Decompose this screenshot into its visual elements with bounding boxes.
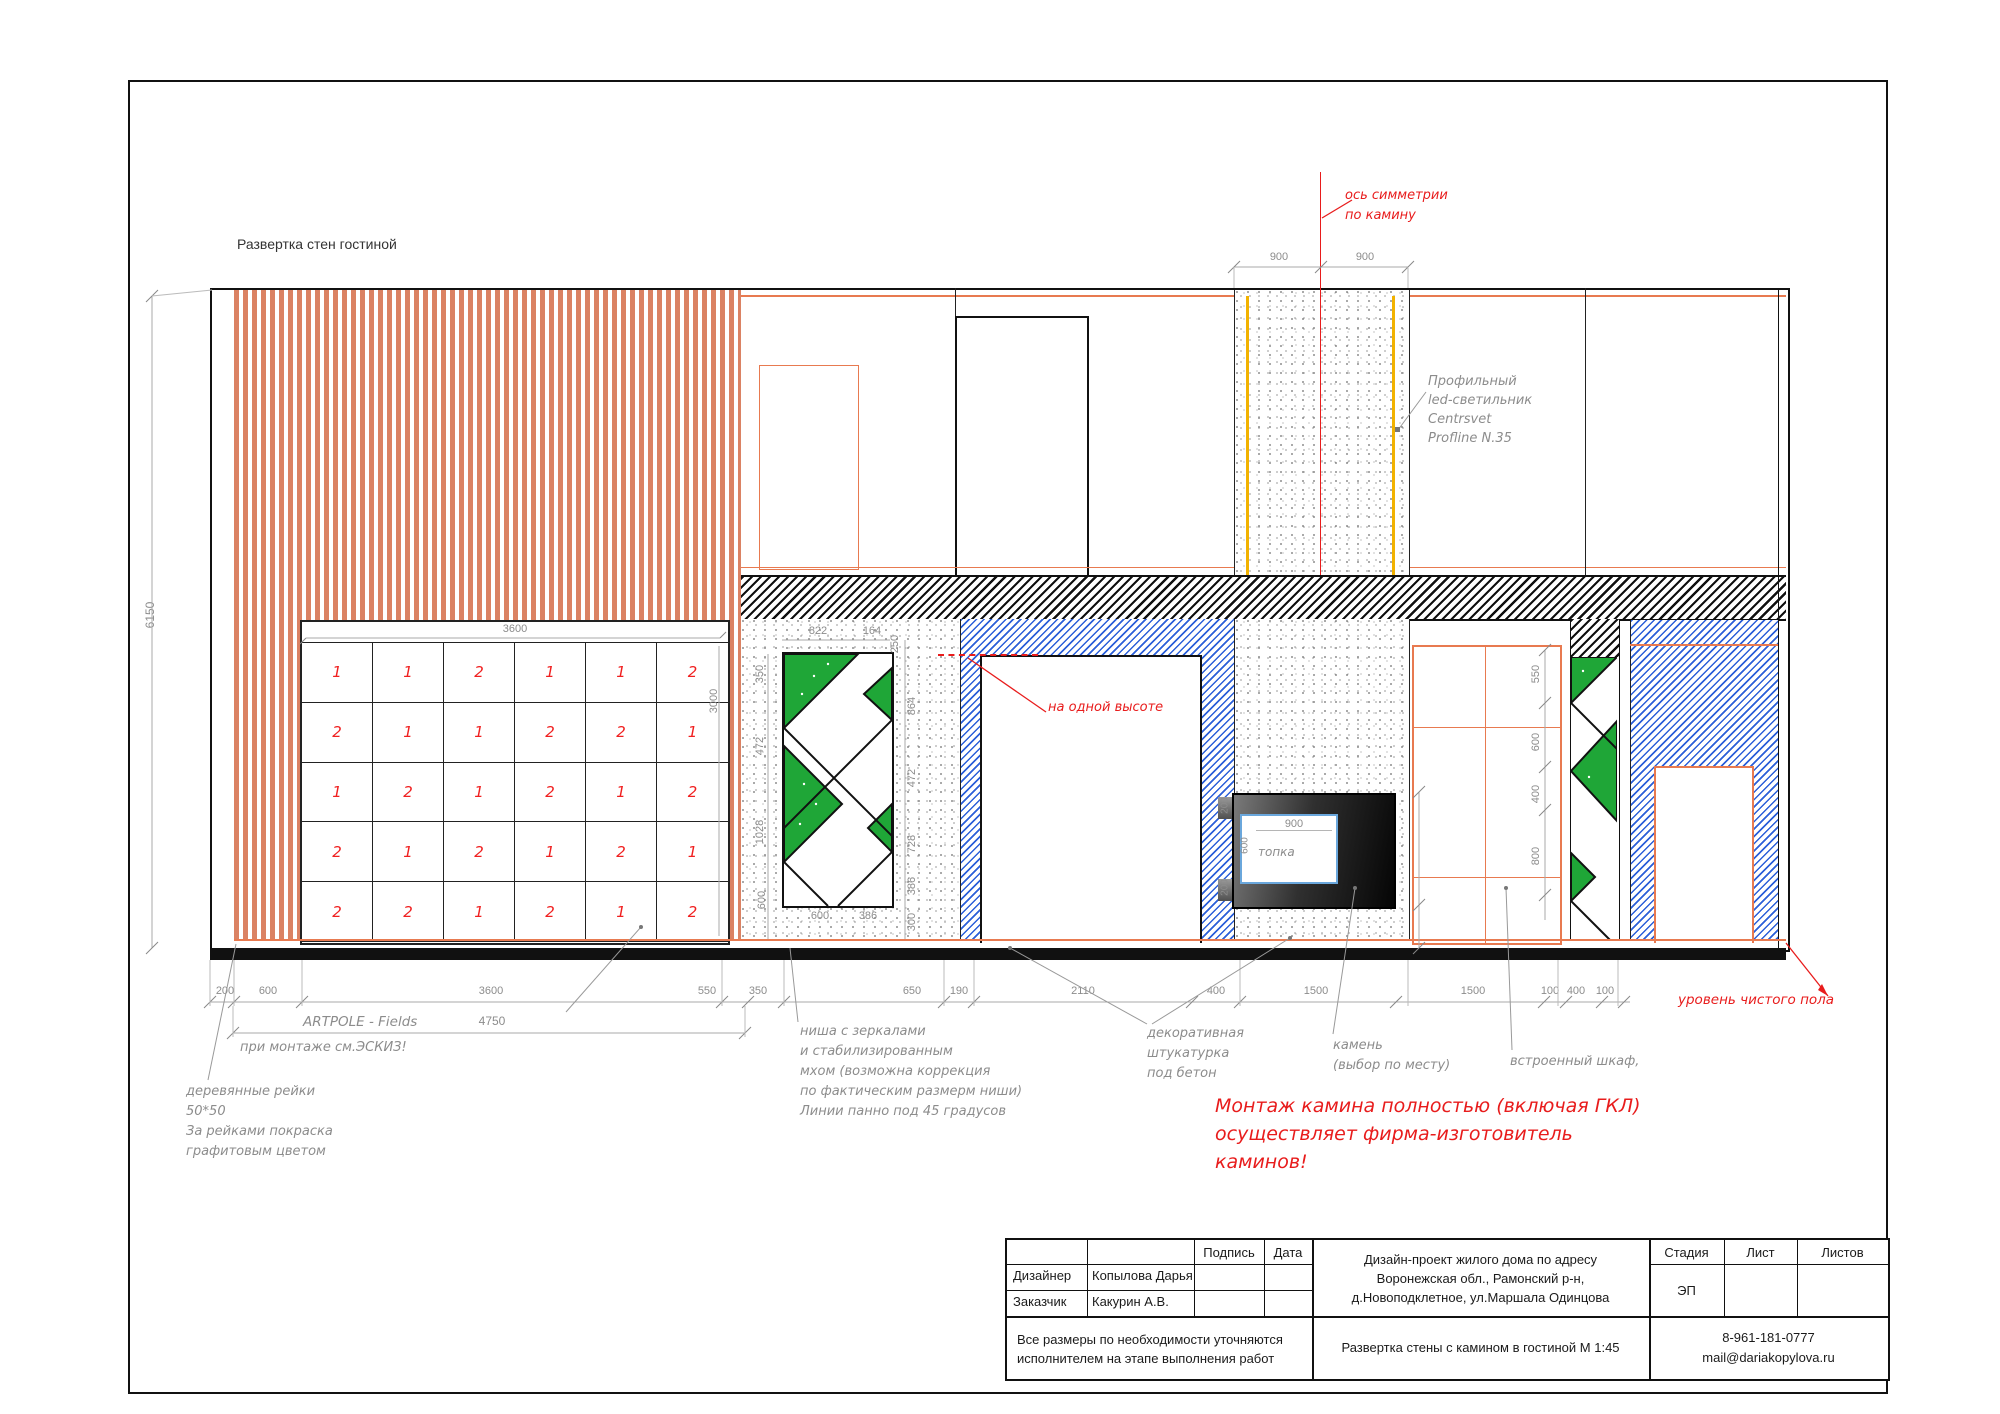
niche-dim: 728 [906, 824, 918, 864]
floor-slab [210, 948, 1786, 960]
ceiling-band [741, 575, 1786, 621]
door-opening [1654, 766, 1754, 943]
tile: 2 [373, 882, 444, 942]
tb-client-name: Какурин А.В. [1092, 1294, 1169, 1309]
tile: 1 [444, 703, 515, 763]
tile-grid: 1 1 2 1 1 2 2 1 1 2 2 1 1 2 1 2 1 2 2 1 … [302, 642, 728, 942]
moss-strip [1570, 657, 1620, 941]
niche-dim: 1028 [754, 810, 766, 854]
moss-pattern [784, 654, 892, 906]
right-wall-double-line [1778, 288, 1779, 948]
page-title: Развертка стен гостиной [237, 236, 397, 252]
niche-dim: 386 [848, 910, 888, 922]
wardrobe-dim: 400 [1530, 774, 1542, 814]
tb-contacts: 8-961-181-0777 mail@dariakopylova.ru [1649, 1316, 1888, 1379]
plinth-line [234, 939, 1786, 941]
tile: 2 [302, 703, 373, 763]
same-height-label: на одной высоте [1048, 700, 1163, 715]
niche-dim: 350 [754, 656, 766, 692]
axis-label: ось симметрии по камину [1345, 186, 1448, 226]
floor-level-label: уровень чистого пола [1678, 992, 1834, 1008]
tile: 2 [586, 703, 657, 763]
tile: 1 [515, 822, 586, 882]
same-height-dash [938, 654, 1038, 656]
tb-sheets-header: Листов [1797, 1240, 1888, 1264]
grid-top-dim: 3600 [302, 623, 728, 635]
tb-line [1007, 1290, 1312, 1291]
tb-date-header: Дата [1264, 1240, 1312, 1264]
bottom-dim: 100 [1583, 985, 1627, 997]
tb-signature-header: Подпись [1194, 1240, 1264, 1264]
bottom-dim: 600 [240, 985, 296, 997]
tile: 2 [444, 643, 515, 703]
door-section-accent [1630, 644, 1778, 646]
artpole-panel: 3600 1 1 2 1 1 2 2 1 1 2 2 1 1 2 1 2 1 2… [300, 620, 730, 945]
tile: 1 [302, 643, 373, 703]
upper-accent-line-left [741, 567, 1234, 568]
tile: 2 [373, 763, 444, 823]
niche-dim: 600 [798, 910, 842, 922]
tile: 2 [515, 882, 586, 942]
tile: 2 [515, 763, 586, 823]
upper-accent-line-right [1408, 567, 1786, 568]
firebox-opening: 900 топка [1240, 814, 1338, 884]
tb-email: mail@dariakopylova.ru [1702, 1348, 1834, 1368]
niche-dim: 164 [854, 625, 890, 637]
tile: 1 [444, 882, 515, 942]
stone-note: камень(выбор по месту) [1333, 1036, 1450, 1076]
tb-project-address: Дизайн-проект жилого дома по адресу Воро… [1312, 1246, 1649, 1310]
door-outline-orange [759, 365, 859, 570]
tb-stage-header: Стадия [1649, 1240, 1724, 1264]
title-block: Подпись Дата Дизайнер Копылова Дарья Зак… [1005, 1238, 1890, 1381]
tb-sheet-title: Развертка стены с камином в гостиной М 1… [1312, 1316, 1649, 1379]
bottom-dim: 400 [1188, 985, 1244, 997]
tb-designer-name: Копылова Дарья [1092, 1268, 1193, 1283]
firebox-width-dim: 900 [1256, 818, 1332, 831]
tb-client-label: Заказчик [1013, 1294, 1066, 1309]
dim-900-left: 900 [1244, 251, 1314, 263]
firebox-dim: 200 [1220, 789, 1231, 823]
firebox-dim: 200 [1220, 871, 1231, 905]
tile: 1 [657, 822, 728, 882]
wardrobe-dim: 550 [1530, 654, 1542, 694]
fireplace-warning: Монтаж камина полностью (включая ГКЛ)осу… [1215, 1092, 1641, 1176]
slats-note: деревянные рейки50*50 За рейками покраск… [186, 1082, 333, 1162]
led-strip-left [1246, 296, 1249, 575]
wardrobe-dim: 800 [1530, 836, 1542, 876]
tile: 1 [444, 763, 515, 823]
firebox-dim: 600 [1240, 829, 1251, 863]
tb-sheet-header: Лист [1724, 1240, 1797, 1264]
overall-height-dim: 6150 [143, 593, 157, 637]
tv-niche-opening [980, 655, 1202, 943]
tb-phone: 8-961-181-0777 [1722, 1328, 1815, 1348]
niche-dim: 300 [906, 902, 918, 942]
artpole-label: ARTPOLE - Fields [303, 1012, 417, 1032]
tile: 2 [657, 763, 728, 823]
tb-line [1087, 1240, 1088, 1316]
wardrobe-dim: 600 [1530, 722, 1542, 762]
moss-mirror-panel [782, 652, 894, 908]
moss-strip-header [1570, 619, 1620, 657]
dim-900-right: 900 [1330, 251, 1400, 263]
led-strip-right [1392, 296, 1395, 575]
bottom-dim: 190 [931, 985, 987, 997]
artpole-note: при монтаже см.ЭСКИЗ! [240, 1038, 407, 1058]
tb-disclaimer: Все размеры по необходимости уточняютсяи… [1017, 1330, 1307, 1368]
niche-dim: 472 [906, 758, 918, 798]
niche-dim: 472 [754, 728, 766, 764]
tile: 1 [515, 643, 586, 703]
tile: 2 [302, 822, 373, 882]
grid-right-dim: 3000 [708, 679, 720, 723]
tb-line [1007, 1264, 1312, 1265]
plaster-note: декоративнаяштукатуркапод бетон [1147, 1024, 1244, 1084]
niche-dim: 386 [906, 866, 918, 906]
tile: 2 [302, 882, 373, 942]
niche-dim: 250 [889, 627, 901, 661]
fireplace-chimney [1234, 290, 1410, 575]
bottom-dim: 1500 [1445, 985, 1501, 997]
niche-dim: 600 [756, 882, 768, 918]
tile: 1 [586, 643, 657, 703]
bottom-dim: 1500 [1288, 985, 1344, 997]
tile: 2 [515, 703, 586, 763]
drawing-sheet: Развертка стен гостиной 3600 1 1 2 1 1 2… [0, 0, 2000, 1414]
bottom-dim: 550 [679, 985, 735, 997]
tile: 2 [586, 822, 657, 882]
upper-opening [955, 316, 1089, 579]
moss-strip-pattern [1571, 657, 1617, 941]
tile: 1 [302, 763, 373, 823]
niche-dim: 822 [796, 625, 840, 637]
upper-wall-divider2 [1585, 288, 1586, 575]
niche-note: ниша с зеркаламии стабилизированныммхом … [800, 1022, 1022, 1122]
bottom-dim: 2110 [1055, 985, 1111, 997]
tile: 2 [657, 882, 728, 942]
cabinet-note: встроенный шкаф, [1510, 1052, 1639, 1072]
firebox-label: топка [1258, 842, 1295, 862]
tile: 1 [586, 763, 657, 823]
tile: 1 [373, 643, 444, 703]
tile: 1 [373, 703, 444, 763]
led-light-label: Профильный led-светильник Centrsvet Prof… [1428, 372, 1532, 448]
bottom-dim: 350 [730, 985, 786, 997]
tb-stage-value: ЭП [1649, 1264, 1724, 1316]
symmetry-axis-line [1320, 172, 1321, 640]
artpole-dim: 4750 [462, 1014, 522, 1028]
tile: 2 [444, 822, 515, 882]
tb-designer-label: Дизайнер [1013, 1268, 1071, 1283]
bottom-dim: 3600 [463, 985, 519, 997]
tile: 1 [586, 882, 657, 942]
wardrobe-shelf-2 [1414, 877, 1560, 878]
tile: 1 [373, 822, 444, 882]
niche-dim: 864 [906, 686, 918, 726]
wardrobe-divider-v [1485, 647, 1486, 943]
